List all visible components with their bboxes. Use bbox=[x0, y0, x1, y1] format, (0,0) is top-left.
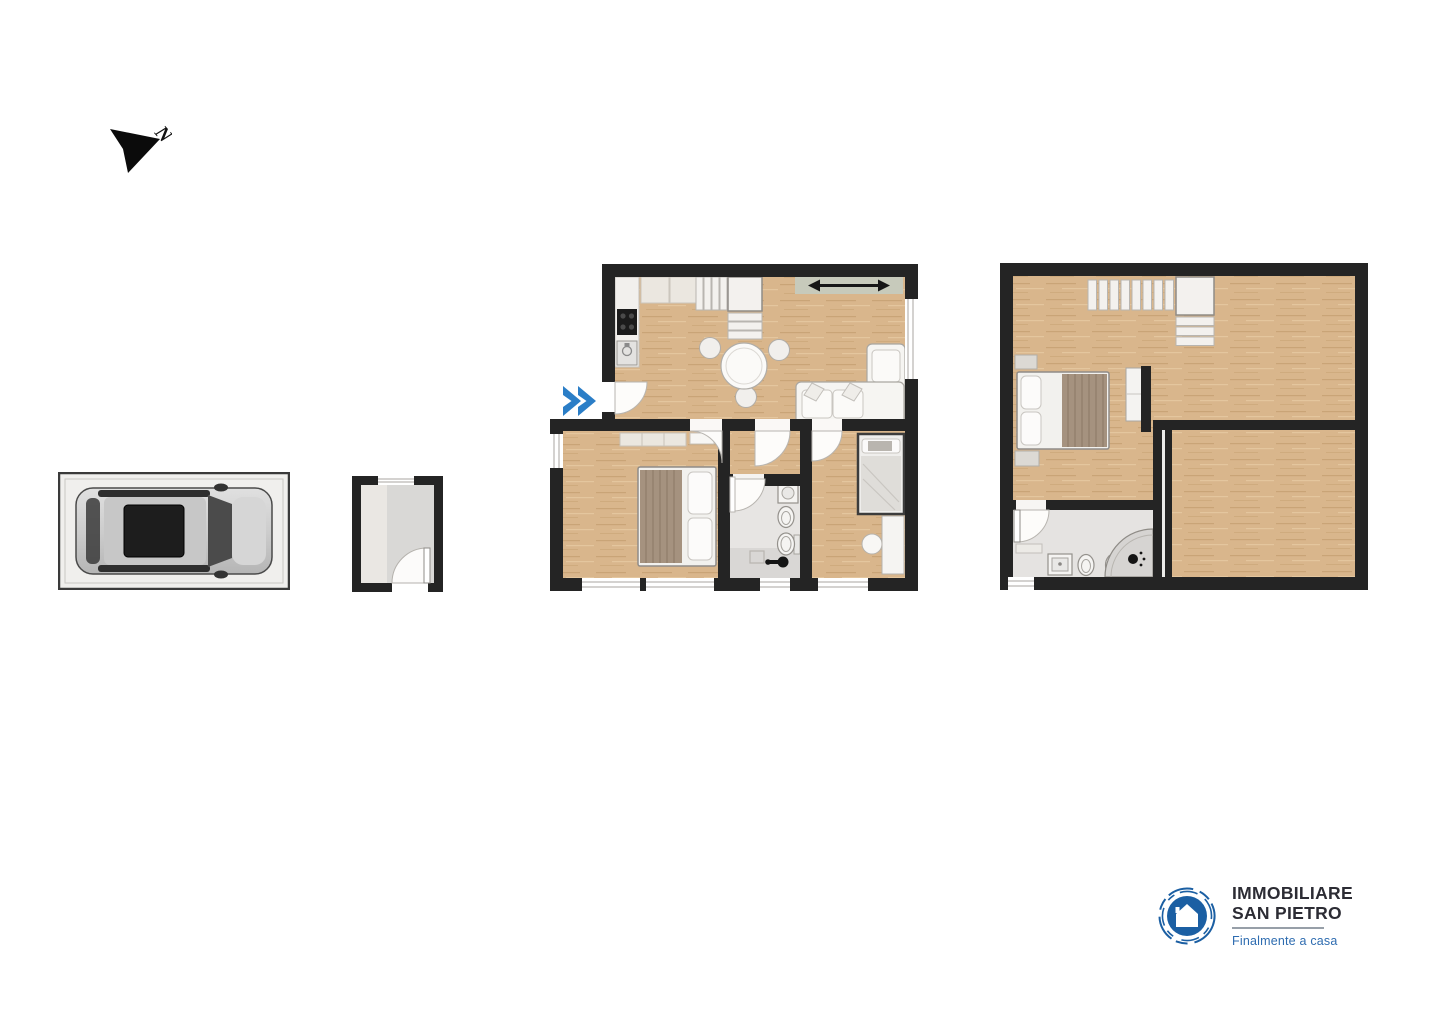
upper-floor-plan bbox=[1000, 263, 1368, 590]
double-bed-icon bbox=[638, 467, 716, 566]
north-arrow-icon: N bbox=[108, 116, 172, 180]
toilet-icon bbox=[778, 533, 801, 555]
balcony-door-arrow-icon bbox=[795, 277, 903, 294]
car-top-view-icon bbox=[76, 484, 272, 579]
bidet-icon bbox=[778, 507, 794, 528]
windows bbox=[1008, 577, 1034, 590]
wardrobe-icon bbox=[620, 433, 714, 446]
logo-line1: IMMOBILIARE bbox=[1232, 884, 1353, 904]
logo-line2: SAN PIETRO bbox=[1232, 904, 1353, 924]
bidet-icon bbox=[1078, 555, 1094, 576]
logo-tagline: Finalmente a casa bbox=[1232, 934, 1353, 948]
floorplan-sheet: N bbox=[0, 0, 1440, 1018]
stove-icon bbox=[617, 309, 637, 335]
ground-floor-plan bbox=[550, 264, 918, 591]
garage-plan bbox=[58, 472, 290, 590]
house-in-circle-icon bbox=[1156, 884, 1218, 948]
logo-divider bbox=[1232, 927, 1324, 929]
double-bed-icon bbox=[1017, 372, 1109, 449]
single-bed-icon bbox=[858, 434, 904, 514]
storage-room-plan bbox=[352, 476, 443, 592]
kitchen-sink-icon bbox=[617, 341, 637, 365]
window-icon bbox=[378, 476, 414, 485]
double-chevron-right-icon bbox=[560, 381, 606, 421]
agency-logo: IMMOBILIARE SAN PIETRO Finalmente a casa bbox=[1156, 884, 1353, 948]
